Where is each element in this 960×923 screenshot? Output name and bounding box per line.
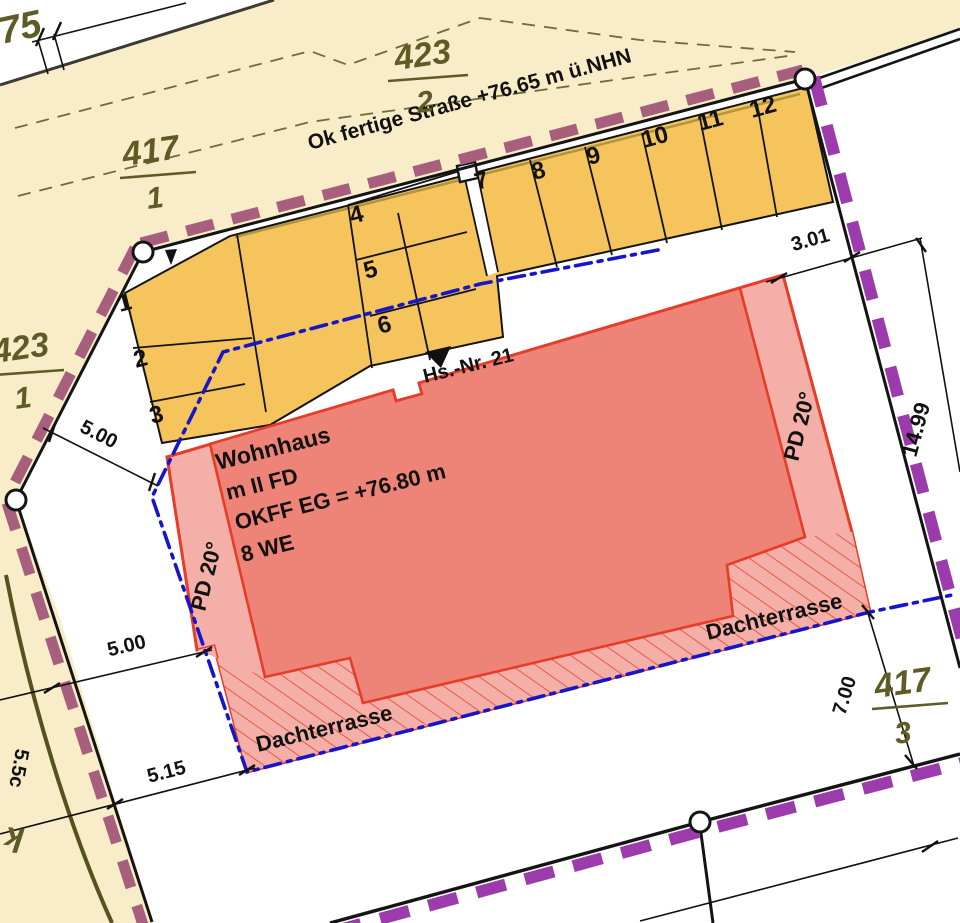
dim-topleft-ext2 xyxy=(54,34,64,70)
boundary-dash-south xyxy=(332,763,960,923)
dim-southeast-text: 7.00 xyxy=(829,674,861,718)
survey-point-ne xyxy=(795,69,815,89)
dim-stray-bottomright-line xyxy=(640,838,958,921)
parcel-417-3-den: 3 xyxy=(892,716,913,751)
dim-east-text: 14.99 xyxy=(897,400,935,460)
dim-west-lower-text: 5.00 xyxy=(105,631,148,661)
partial-75-label: 75 xyxy=(0,3,46,53)
dim-topleft-tick2 xyxy=(53,22,61,40)
dim-northeast-line xyxy=(766,238,922,282)
corner-pointer-icon xyxy=(165,249,177,265)
survey-point-s xyxy=(690,812,710,832)
boundary-south xyxy=(330,754,960,923)
site-plan: Ok fertige Straße +76.65 m ü.NHN 423 2 4… xyxy=(0,0,960,923)
survey-point-w xyxy=(6,490,26,510)
dim-southwest-text: 5.15 xyxy=(145,757,188,788)
survey-point-nw xyxy=(133,242,153,262)
site-plan-svg: Ok fertige Straße +76.65 m ü.NHN 423 2 4… xyxy=(0,0,960,923)
parcel-417-3-num: 417 xyxy=(871,660,936,706)
dim-northeast-text: 3.01 xyxy=(789,224,832,256)
boundary-south-spur xyxy=(700,826,713,923)
parcel-423-2-num: 423 xyxy=(391,32,454,78)
